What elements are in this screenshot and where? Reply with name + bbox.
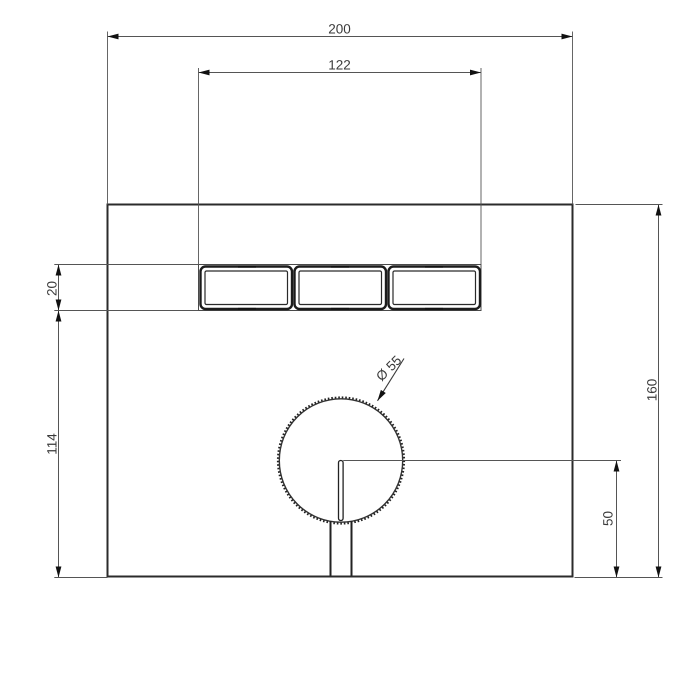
svg-text:114: 114: [45, 433, 60, 455]
svg-text:200: 200: [328, 22, 351, 37]
svg-text:160: 160: [645, 379, 660, 402]
svg-text:50: 50: [601, 511, 616, 526]
svg-text:20: 20: [45, 281, 60, 296]
svg-text:122: 122: [328, 58, 351, 73]
